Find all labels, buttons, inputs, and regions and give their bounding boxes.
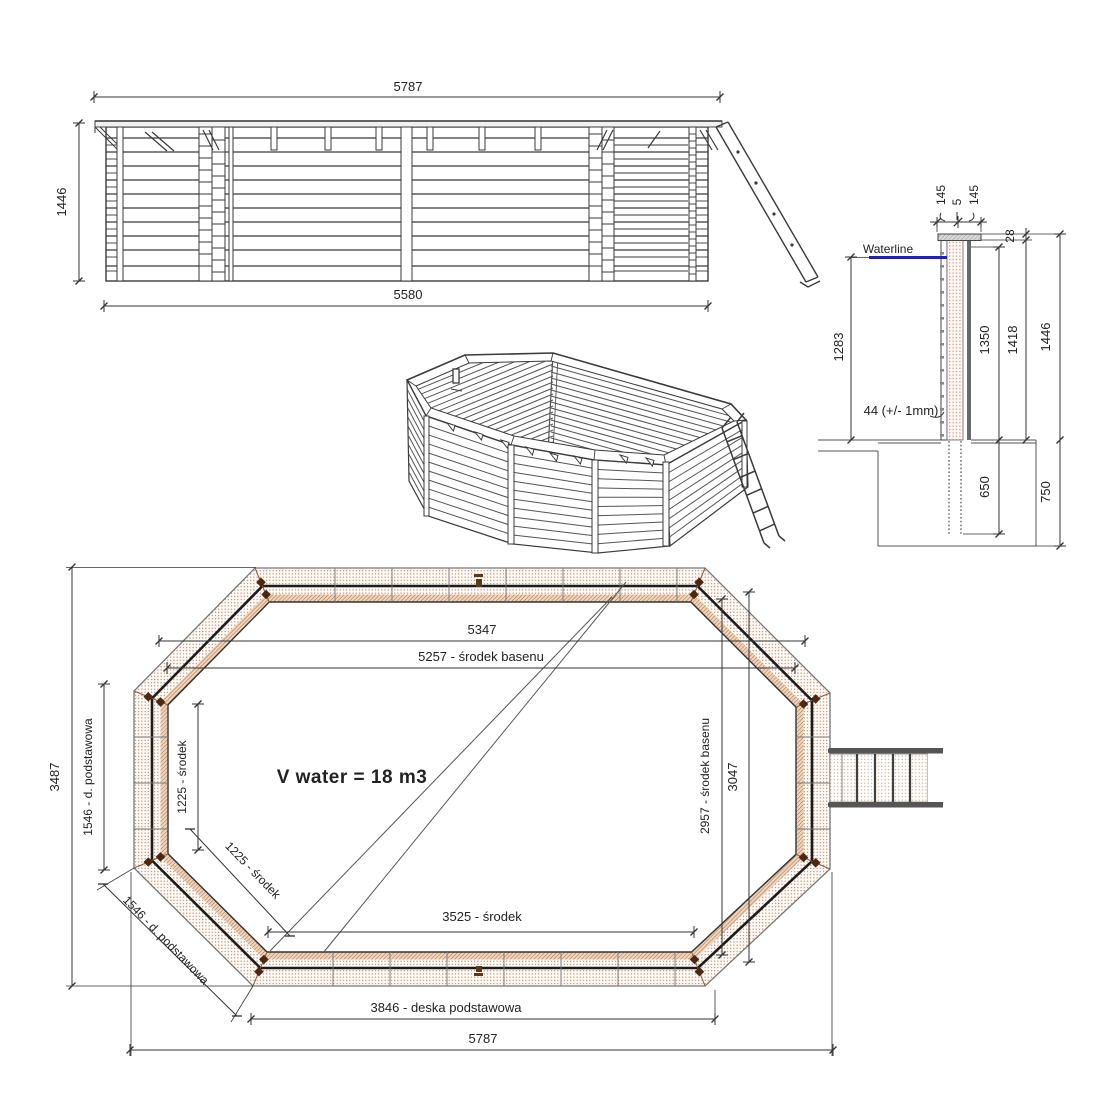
svg-text:5: 5 xyxy=(950,198,964,205)
svg-text:1350: 1350 xyxy=(977,326,992,355)
svg-text:28: 28 xyxy=(1003,229,1017,243)
svg-text:1546 - d. podstawowa: 1546 - d. podstawowa xyxy=(81,718,95,836)
svg-text:1225 - środek: 1225 - środek xyxy=(175,739,189,813)
svg-text:1283: 1283 xyxy=(831,333,846,362)
svg-text:3047: 3047 xyxy=(725,763,740,792)
svg-text:2957 - środek basenu: 2957 - środek basenu xyxy=(698,718,712,834)
svg-text:5347: 5347 xyxy=(468,622,497,637)
svg-text:5787: 5787 xyxy=(394,79,423,94)
svg-text:44 (+/- 1mm): 44 (+/- 1mm) xyxy=(864,403,939,418)
svg-text:5580: 5580 xyxy=(394,287,423,302)
svg-text:Waterline: Waterline xyxy=(863,242,914,256)
svg-text:5787: 5787 xyxy=(469,1031,498,1046)
svg-text:1418: 1418 xyxy=(1005,326,1020,355)
svg-text:5257 - środek basenu: 5257 - środek basenu xyxy=(418,649,544,664)
svg-text:3525 - środek: 3525 - środek xyxy=(442,909,522,924)
svg-text:750: 750 xyxy=(1038,481,1053,503)
svg-text:3846 - deska podstawowa: 3846 - deska podstawowa xyxy=(370,1000,522,1015)
svg-text:145: 145 xyxy=(934,185,948,205)
svg-text:1446: 1446 xyxy=(54,188,69,217)
svg-text:1446: 1446 xyxy=(1038,323,1053,352)
svg-text:145: 145 xyxy=(967,185,981,205)
svg-text:3487: 3487 xyxy=(47,763,62,792)
svg-text:V water = 18 m3: V water = 18 m3 xyxy=(277,767,428,788)
svg-text:650: 650 xyxy=(977,476,992,498)
